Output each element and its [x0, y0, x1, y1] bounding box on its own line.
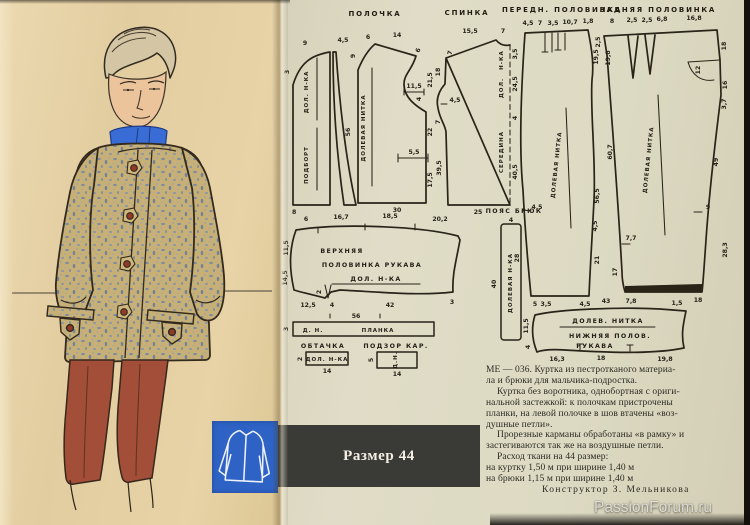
piece-front-trouser: 4,5 7 3,5 10,7 1,8 19,5 56,5 4,5 21 4,5 …: [514, 18, 601, 308]
piece-label: ПЛАНКА: [362, 328, 395, 334]
size-label-bar: Размер 44: [278, 425, 480, 487]
dim: 6: [304, 216, 308, 223]
dim: 40,5: [512, 164, 519, 179]
jacket-pictogram-tile: [212, 421, 278, 493]
piece-upper-sleeve: 6 16,7 18,5 20,2 11,5 14,5 12,5 4 42 3 2…: [282, 213, 460, 309]
dim: 4: [330, 302, 335, 309]
boy-trousers: [64, 360, 168, 512]
dim: 4: [509, 217, 514, 224]
grain-label: ДОЛЕВ. НИТКА: [572, 318, 644, 325]
description-line: планки, на левой полочке в шов втачены «…: [486, 409, 748, 420]
dim: 6: [366, 34, 370, 41]
dim: 39,5: [436, 160, 443, 175]
dim: 49: [713, 158, 720, 167]
dim: 18,5: [382, 213, 397, 220]
dim: 16,8: [686, 15, 701, 22]
dim: 17,5: [427, 172, 434, 187]
piece-label: ПОДБОРТ: [304, 146, 310, 184]
dim: 17: [612, 268, 619, 277]
piece-obtachka: ОБТАЧКА ДОЛ. Н-КА 2 14: [297, 343, 348, 375]
dim: 2: [316, 290, 323, 294]
dim: 1,5: [672, 300, 683, 307]
dim: 10,7: [562, 19, 577, 26]
grain-label: ДОЛЕВАЯ НИТКА: [643, 126, 656, 193]
dim: 20,2: [432, 216, 447, 223]
dim: 5: [368, 358, 375, 362]
dim: 7: [447, 50, 455, 55]
grain-label: ДОЛЕВАЯ НИТКА: [551, 131, 564, 198]
dim: 5: [533, 301, 537, 308]
piece-label: ПОЯС БРЮК: [486, 208, 543, 215]
designer-credit: Конструктор З. Мельникова: [486, 485, 748, 496]
dim: 6,8: [657, 16, 668, 23]
header-polochka: ПОЛОЧКА: [349, 10, 402, 18]
dim: 12,5: [300, 302, 315, 309]
dim: 9: [303, 40, 307, 47]
dim: 56: [352, 313, 361, 320]
dim: 28,3: [722, 242, 729, 257]
description-line: Куртка без воротника, однобортная с ориг…: [486, 387, 748, 398]
dim: 19,5: [593, 49, 600, 64]
piece-podbort: 9 4,5 3 8 ДОЛ. Н-КА ПОДБОРТ 56: [284, 37, 356, 216]
grain-label: ДОЛЕВАЯ НИТКА: [361, 94, 367, 161]
watermark: PassionForum.ru: [594, 499, 712, 517]
dim: 4,5: [523, 20, 534, 27]
dim: 24,5: [512, 76, 519, 91]
grain-label: ДОЛ.: [499, 78, 505, 98]
dim: 7: [501, 28, 505, 35]
dim: 3: [450, 299, 454, 306]
dim: 5,5: [409, 149, 420, 156]
dim: 3,5: [548, 20, 559, 27]
dim: 14: [393, 32, 402, 39]
dim: 11,5: [406, 83, 421, 90]
dim: 2,5: [627, 17, 638, 24]
dim: 11,5: [523, 318, 530, 333]
description-line: на брюки 1,15 м при ширине 1,40 м: [486, 474, 748, 485]
piece-podzor: ПОДЗОР КАР. Д.Н. 5 14: [363, 343, 428, 378]
dim: 21: [594, 256, 601, 265]
dim: 3,5: [541, 301, 552, 308]
dim: 6: [415, 47, 423, 53]
dim: 4,5: [450, 97, 461, 104]
grain-label: ДОЛ. Н-КА: [306, 357, 349, 363]
size-label: Размер 44: [343, 448, 415, 465]
pattern-description: МЕ — 036. Куртка из пестротканого матери…: [486, 365, 748, 496]
description-line: Расход ткани на 44 размер:: [486, 452, 748, 463]
piece-label: ВЕРХНЯЯ: [320, 248, 363, 255]
dim: 1,8: [583, 18, 594, 25]
dim: 42: [386, 302, 395, 309]
grain-label: ДОЛ. Н-КА: [350, 276, 401, 283]
dim: 16,3: [549, 356, 564, 363]
piece-spinka: 15,5 7 7 18 4,5 7 39,5 3,5 24,5 4 40,5 2…: [435, 28, 519, 216]
dim: 28: [514, 254, 521, 263]
dim: 21,5: [427, 72, 434, 87]
dim: 4,5: [338, 37, 349, 44]
piece-polochka: 6 14 6 9 21,5 11,5 4 22 5,5 17,5 30 ДОЛЕ…: [350, 32, 434, 214]
piece-label: ПОЛОВИНКА РУКАВА: [322, 262, 422, 269]
dim: 8: [292, 209, 296, 216]
grain-label: ДОЛЕВАЯ Н-КА: [508, 253, 514, 313]
piece-label: НИЖНЯЯ ПОЛОВ.: [569, 333, 651, 340]
magazine-page: ПОЛОЧКА СПИНКА ПЕРЕДН. ПОЛОВИНКА ЗАДНЯЯ …: [0, 0, 750, 525]
dim: 25: [474, 209, 483, 216]
dim: 14: [393, 371, 402, 378]
grain-label: ДОЛ. Н-КА: [304, 71, 310, 114]
dim: 15,5: [462, 28, 477, 35]
dim: 4: [416, 96, 423, 101]
photo-edge: [744, 0, 750, 525]
dim: 22: [427, 128, 434, 137]
header-zadnyaya-polovinka: ЗАДНЯЯ ПОЛОВИНКА: [600, 6, 716, 14]
dim: 43: [602, 298, 611, 305]
dim: 18: [597, 355, 606, 362]
dim: 4,5: [580, 301, 591, 308]
size-badge: Размер 44: [212, 421, 480, 493]
dim: 14: [323, 368, 332, 375]
dim: 40: [491, 279, 498, 288]
dim: 3,5: [512, 49, 519, 60]
header-spinka: СПИНКА: [445, 9, 490, 17]
dim: 7: [538, 20, 542, 27]
dim: 7: [435, 120, 442, 124]
jacket-icon: [212, 421, 278, 493]
piece-planka: 56 3 Д. Н. ПЛАНКА: [283, 313, 434, 336]
description-line: Прорезные карманы обработаны «в рамку» и: [486, 430, 748, 441]
dim: 2: [297, 357, 304, 361]
dim: 2,5: [595, 37, 602, 48]
page-gutter: [272, 0, 288, 525]
piece-back-trouser: 8 2,5 2,5 6,8 16,8 2,5 19,8 60,7 7,7 17 …: [595, 15, 729, 305]
description-line: нальной застежкой: к полочкам пристрочен…: [486, 398, 748, 409]
dim: 18: [435, 68, 442, 77]
dim: 8: [610, 18, 614, 25]
description-line: на куртку 1,50 м при ширине 1,40 м: [486, 463, 748, 474]
dim: 19,8: [657, 356, 672, 363]
dim: 56: [345, 128, 352, 137]
dim: 12: [695, 66, 702, 75]
dim: 19,8: [605, 50, 612, 65]
dim: 4,5: [592, 221, 599, 232]
dim: 7,7: [626, 235, 637, 242]
dim: 4: [512, 115, 519, 120]
dim: 2,5: [642, 17, 653, 24]
description-line: застегиваются так же на воздушные петли.: [486, 441, 748, 452]
dim: 18: [694, 297, 703, 304]
boy-hair: [104, 27, 175, 78]
description-line: ла и брюки для мальчика-подростка.: [486, 376, 748, 387]
dim: 18: [721, 42, 728, 51]
piece-lower-sleeve: 3,5 43 1,5 11,5 4 16,3 18 19,8 ДОЛЕВ. НИ…: [523, 298, 686, 363]
dim: 3,7: [721, 99, 728, 110]
dim: 16: [722, 81, 729, 90]
dim: 60,7: [607, 144, 614, 159]
dim: 4: [525, 344, 532, 349]
piece-label: РУКАВА: [576, 343, 614, 350]
grain-label: Н-КА: [499, 50, 505, 70]
center-fold-label: СЕРЕДИНА: [499, 131, 505, 173]
piece-label: ОБТАЧКА: [301, 343, 345, 350]
description-line: МЕ — 036. Куртка из пестротканого матери…: [486, 365, 748, 376]
grain-label: Д. Н.: [303, 328, 324, 334]
boy-jacket: [47, 144, 224, 363]
dim: 7,8: [626, 298, 637, 305]
piece-label: ПОДЗОР КАР.: [363, 343, 428, 350]
dim: 56,5: [594, 188, 601, 203]
dim: 9: [706, 204, 710, 211]
grain-label: Д.Н.: [393, 351, 399, 369]
description-line: душные петли».: [486, 420, 748, 431]
dim: 9: [350, 54, 357, 58]
dim: 16,7: [333, 214, 348, 221]
photo-edge: [0, 0, 290, 4]
